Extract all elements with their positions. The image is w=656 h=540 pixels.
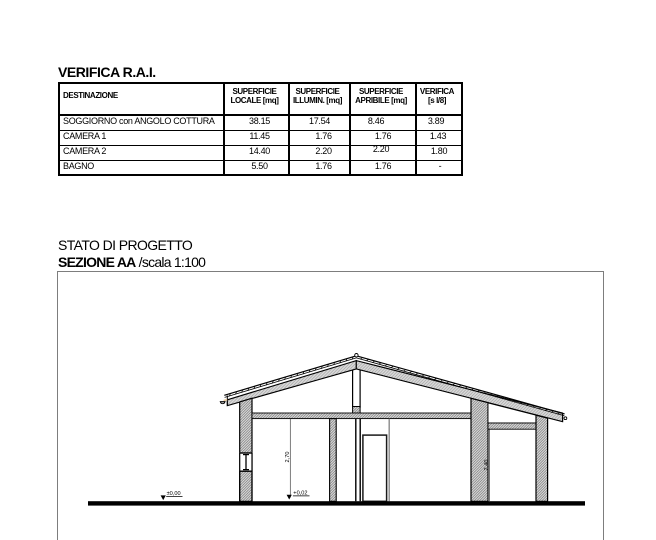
svg-text:2,70: 2,70 <box>285 452 291 463</box>
svg-text:2,40: 2,40 <box>484 460 490 471</box>
